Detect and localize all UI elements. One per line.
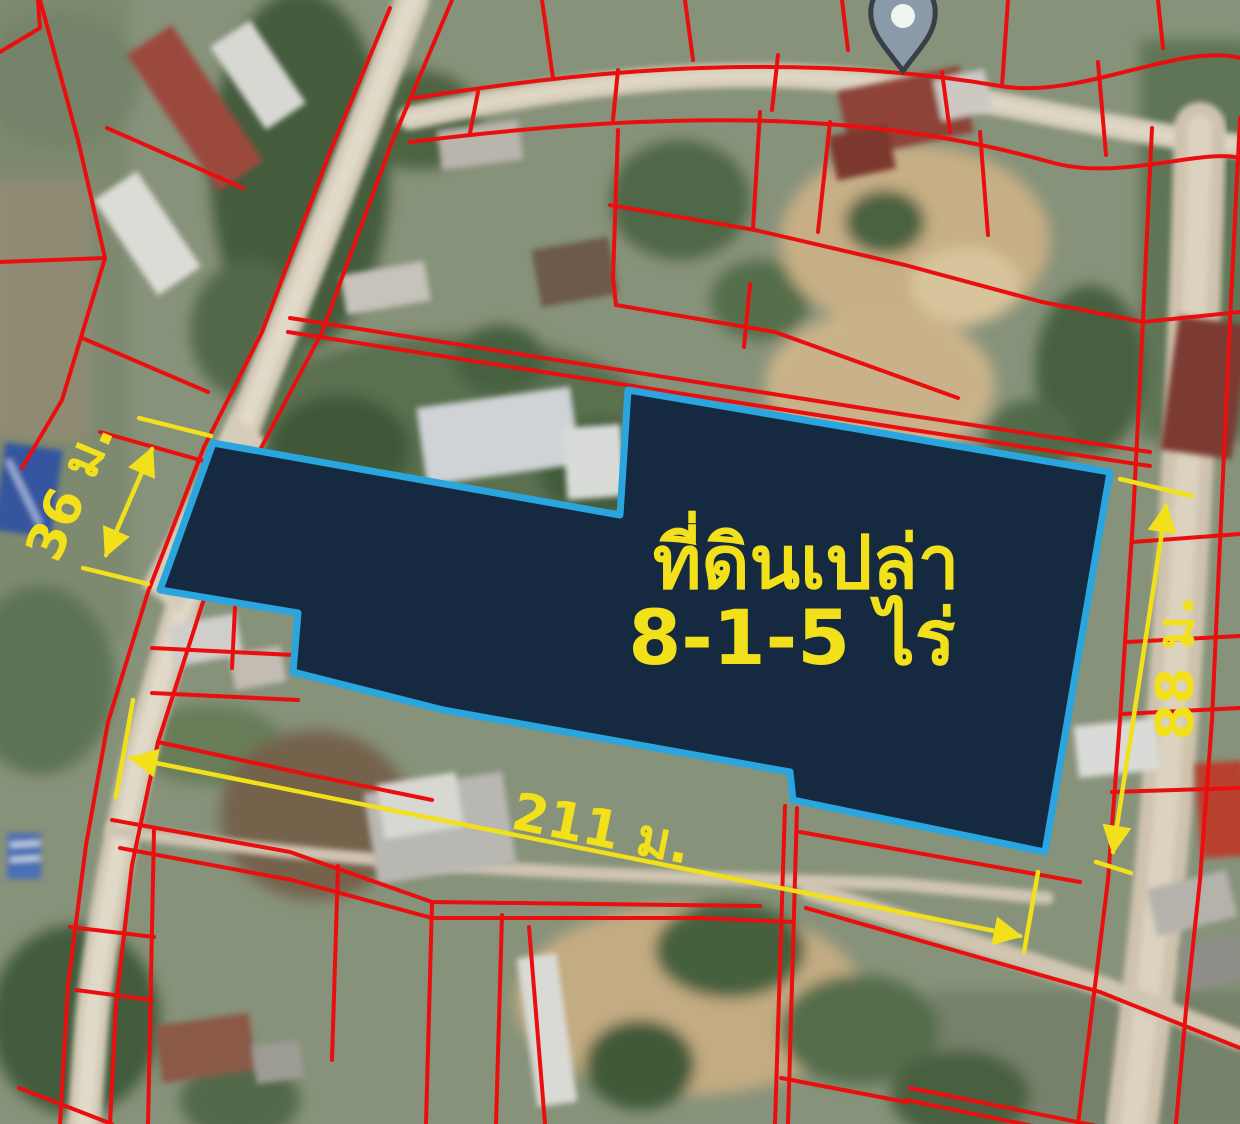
parcel-title-label: ที่ดินเปล่า xyxy=(653,510,960,606)
parcel-area-label: 8-1-5 ไร่ xyxy=(628,593,955,682)
map-canvas: 36 ม. 211 ม. 88 ม. ที่ดินเปล่า 8-1-5 ไร่ xyxy=(0,0,1240,1124)
dimension-east-label: 88 ม. xyxy=(1146,596,1206,741)
parcel-caption: ที่ดินเปล่า 8-1-5 ไร่ xyxy=(628,510,959,682)
satellite-land-map: 36 ม. 211 ม. 88 ม. ที่ดินเปล่า 8-1-5 ไร่ xyxy=(0,0,1240,1124)
